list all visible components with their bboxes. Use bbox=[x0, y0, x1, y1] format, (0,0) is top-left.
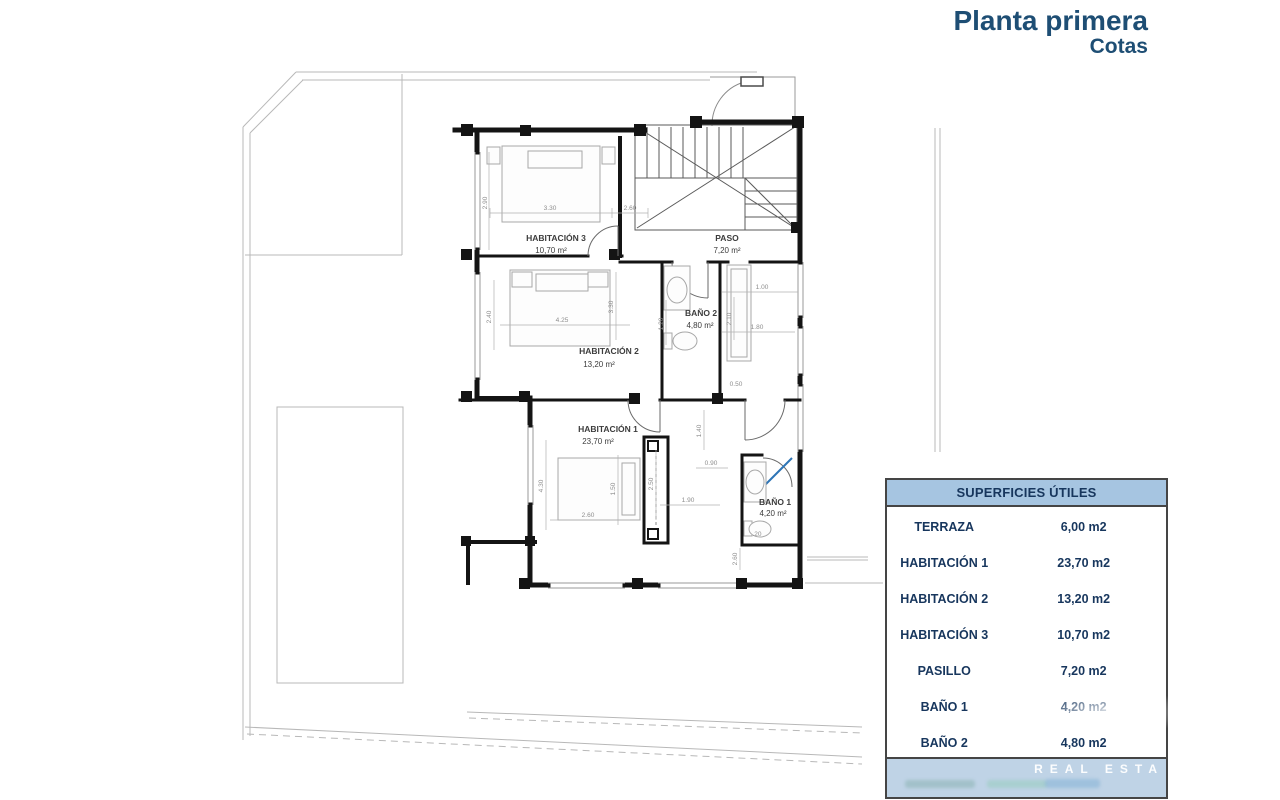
table-row: BAÑO 14,20 m2 bbox=[887, 700, 1166, 714]
page: Planta primera Cotas bbox=[0, 0, 1280, 800]
row-value: 4,80 m2 bbox=[1001, 736, 1166, 750]
faded-footer-text bbox=[1045, 779, 1100, 788]
dim-4-25: 4.25 bbox=[556, 317, 569, 324]
dim-1-40: 1.40 bbox=[696, 424, 703, 437]
table-row: HABITACIÓN 213,20 m2 bbox=[887, 592, 1166, 606]
dim-20: .20 bbox=[752, 531, 761, 538]
surfaces-table: SUPERFICIES ÚTILES TERRAZA6,00 m2HABITAC… bbox=[885, 478, 1168, 799]
surfaces-table-body: TERRAZA6,00 m2HABITACIÓN 123,70 m2HABITA… bbox=[887, 507, 1166, 763]
dim-2-40: 2.40 bbox=[486, 310, 493, 323]
room-label-habitacion1: HABITACIÓN 1 bbox=[578, 423, 638, 434]
dim-1-80: 1.80 bbox=[751, 324, 764, 331]
exterior-walls-2 bbox=[468, 398, 535, 583]
dim-1-20: 1.20 bbox=[658, 317, 665, 330]
room-label-habitacion3: HABITACIÓN 3 bbox=[526, 232, 586, 243]
room-area-paso: 7,20 m² bbox=[713, 246, 740, 255]
dim-4-30: 4.30 bbox=[538, 479, 545, 492]
row-label: BAÑO 1 bbox=[887, 700, 1001, 714]
row-label: BAÑO 2 bbox=[887, 736, 1001, 750]
room-area-habitacion2: 13,20 m² bbox=[583, 360, 615, 369]
room-label-paso: PASO bbox=[715, 233, 739, 243]
terrace-top bbox=[710, 77, 795, 126]
room-label-habitacion2: HABITACIÓN 2 bbox=[579, 345, 639, 356]
dim-2-10: 2.10 bbox=[726, 312, 733, 325]
doors bbox=[588, 226, 792, 487]
dim-1-00: 1.00 bbox=[756, 284, 769, 291]
dim-1-90: 1.90 bbox=[682, 497, 695, 504]
room-area-bano1: 4,20 m² bbox=[759, 509, 786, 518]
dim-0-50: 0.50 bbox=[730, 381, 743, 388]
row-value: 13,20 m2 bbox=[1001, 592, 1166, 606]
surfaces-table-footer: REAL ESTA bbox=[887, 757, 1166, 797]
table-row: PASILLO7,20 m2 bbox=[887, 664, 1166, 678]
garden-pool-outline bbox=[277, 407, 403, 683]
row-label: HABITACIÓN 2 bbox=[887, 592, 1001, 606]
table-row: HABITACIÓN 123,70 m2 bbox=[887, 556, 1166, 570]
watermark-text: REAL ESTA bbox=[1034, 762, 1164, 776]
dim-2-60b: 2.60 bbox=[582, 512, 595, 519]
faded-footer-text bbox=[987, 780, 1047, 788]
faded-footer-text bbox=[905, 780, 975, 788]
dim-1-50: 1.50 bbox=[610, 482, 617, 495]
room-label-bano2: BAÑO 2 bbox=[685, 308, 717, 318]
room-area-habitacion3: 10,70 m² bbox=[535, 246, 567, 255]
row-value: 4,20 m2 bbox=[1001, 700, 1166, 714]
row-value: 10,70 m2 bbox=[1001, 628, 1166, 642]
row-label: PASILLO bbox=[887, 664, 1001, 678]
dim-2-60a: 2.60 bbox=[624, 205, 637, 212]
staircase bbox=[635, 125, 797, 230]
dim-2-90: 2.90 bbox=[482, 196, 489, 209]
table-row: BAÑO 24,80 m2 bbox=[887, 736, 1166, 750]
row-label: HABITACIÓN 3 bbox=[887, 628, 1001, 642]
table-row: HABITACIÓN 310,70 m2 bbox=[887, 628, 1166, 642]
row-value: 6,00 m2 bbox=[1001, 520, 1166, 534]
surfaces-table-header: SUPERFICIES ÚTILES bbox=[887, 480, 1166, 507]
row-value: 7,20 m2 bbox=[1001, 664, 1166, 678]
room-label-bano1: BAÑO 1 bbox=[759, 497, 791, 507]
dim-2-60c: 2.60 bbox=[732, 552, 739, 565]
dim-2-50: 2.50 bbox=[648, 477, 655, 490]
row-label: HABITACIÓN 1 bbox=[887, 556, 1001, 570]
row-label: TERRAZA bbox=[887, 520, 1001, 534]
dim-3-30b: 3.30 bbox=[608, 300, 615, 313]
table-row: TERRAZA6,00 m2 bbox=[887, 520, 1166, 534]
terrace-door-leaf bbox=[741, 77, 763, 86]
dim-3-30a: 3.30 bbox=[544, 205, 557, 212]
room-area-bano2: 4,80 m² bbox=[686, 321, 713, 330]
room-area-habitacion1: 23,70 m² bbox=[582, 437, 614, 446]
row-value: 23,70 m2 bbox=[1001, 556, 1166, 570]
dim-0-90: 0.90 bbox=[705, 460, 718, 467]
